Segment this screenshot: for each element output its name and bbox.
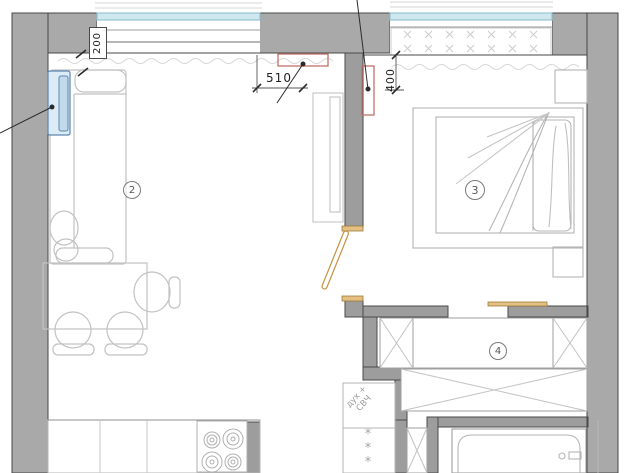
freezer-star: * (365, 429, 372, 441)
room-label-living: 2 (123, 181, 141, 199)
bathtub (452, 429, 586, 473)
window-living (97, 13, 260, 53)
balcony-edge-lines (95, 2, 553, 8)
blue-cabinet (48, 71, 70, 135)
kitchen-counter (48, 420, 260, 473)
plan-drawing (0, 0, 640, 473)
dimension-510: 510 (254, 71, 304, 85)
room-label-hall: 4 (489, 342, 507, 360)
curtain-bedroom (392, 65, 579, 70)
dining-chairs (53, 272, 180, 355)
nightstands (553, 70, 587, 277)
window-bedroom (390, 13, 552, 55)
dimension-200: 200 (89, 27, 107, 59)
hall-closets (380, 318, 587, 368)
room-label-bedroom: 3 (465, 180, 485, 200)
freezer-star: * (365, 457, 372, 469)
bed (413, 108, 583, 248)
curtain-living (58, 59, 333, 64)
sliding-door-marker (488, 302, 547, 306)
freezer-marks: * * * (361, 429, 375, 469)
dimension-400: 400 (384, 58, 398, 102)
hall-wardrobe (401, 369, 587, 411)
vent-shaft (407, 428, 427, 473)
door-living-bedroom (321, 226, 363, 301)
tv-console (313, 93, 343, 222)
floor-plan: 2 3 4 200 510 400 дух + СВЧ * * * (0, 0, 640, 473)
freezer-star: * (365, 443, 372, 455)
stove (197, 421, 247, 472)
